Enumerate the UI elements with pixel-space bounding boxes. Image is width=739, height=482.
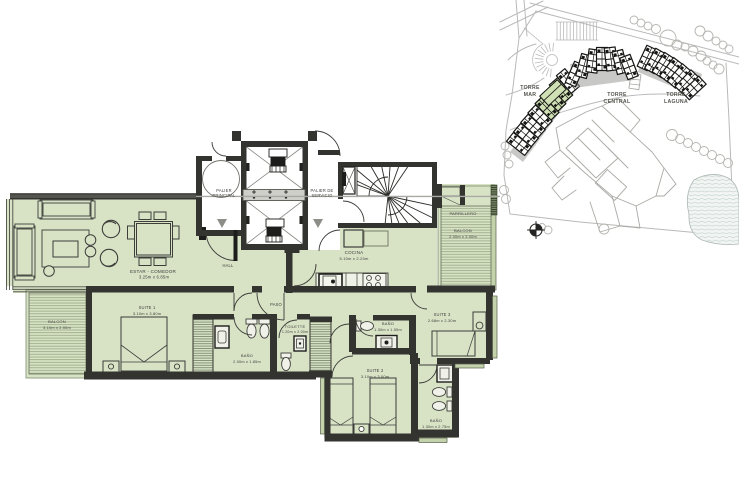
svg-text:1.30m x 1.55m: 1.30m x 1.55m [374,328,402,332]
svg-text:3.25m x 6.85m: 3.25m x 6.85m [139,275,170,280]
svg-text:2.00m x 3.00m: 2.00m x 3.00m [449,235,477,239]
svg-text:SUITE 1: SUITE 1 [139,305,156,310]
svg-text:1.20m x 2.00m: 1.20m x 2.00m [282,330,308,334]
svg-text:PASO: PASO [270,302,282,307]
svg-text:5.10m x 2.20m: 5.10m x 2.20m [339,256,369,261]
svg-text:2.68m x 2.30m: 2.68m x 2.30m [428,318,456,323]
svg-text:ESTAR - COMEDOR: ESTAR - COMEDOR [130,269,177,274]
svg-text:SUITE 3: SUITE 3 [434,312,451,317]
svg-text:TORRE: TORRE [666,92,686,98]
svg-text:PRINCIPAL: PRINCIPAL [212,193,236,198]
svg-text:BAÑO: BAÑO [382,321,394,326]
svg-text:BAÑO: BAÑO [430,418,442,423]
svg-text:TORRE: TORRE [520,85,540,91]
svg-text:BALCON: BALCON [48,319,66,324]
svg-text:3.10m x 3.00m: 3.10m x 3.00m [361,374,389,379]
svg-text:PARRILLERO: PARRILLERO [449,211,476,216]
svg-text:BAÑO: BAÑO [241,353,253,358]
svg-text:LAGUNA: LAGUNA [664,99,688,105]
svg-text:MAR: MAR [524,92,537,98]
svg-text:3.10m x 3.80m: 3.10m x 3.80m [133,311,161,316]
svg-text:TORRE: TORRE [607,92,627,98]
svg-text:SERVICIO: SERVICIO [311,193,332,198]
svg-text:COCINA: COCINA [345,250,364,255]
svg-text:TOILETTE: TOILETTE [285,324,306,329]
svg-text:HALL: HALL [222,263,234,268]
svg-text:1.30m x 2.75m: 1.30m x 2.75m [422,425,450,429]
svg-text:2.00m x 1.85m: 2.00m x 1.85m [233,360,261,364]
svg-text:3.10m x 2.00m: 3.10m x 2.00m [43,326,71,330]
svg-text:BALCON: BALCON [454,228,472,233]
svg-text:SUITE 2: SUITE 2 [367,368,384,373]
svg-text:CENTRAL: CENTRAL [604,99,631,105]
